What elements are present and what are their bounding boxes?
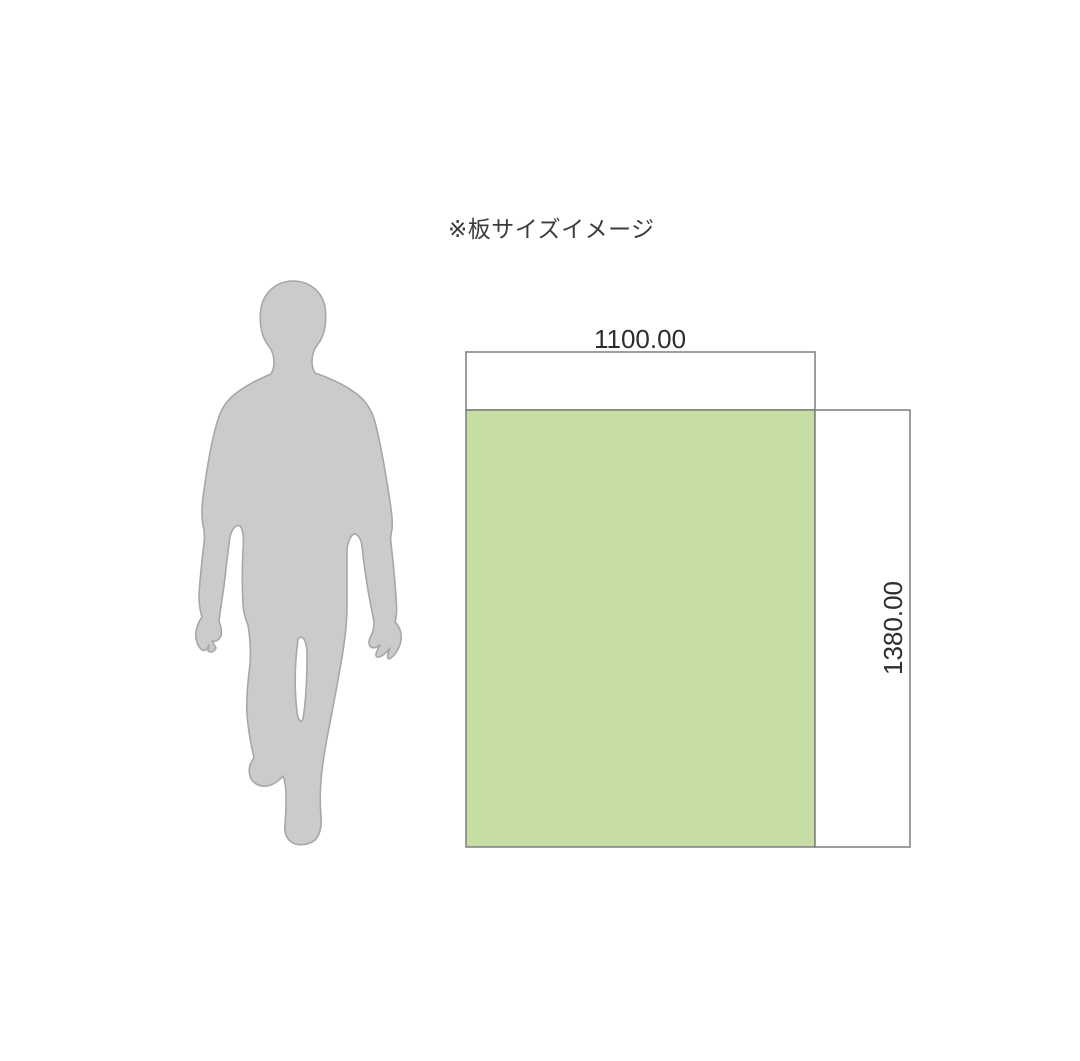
size-diagram-scene: 1100.00 1380.00 (0, 0, 1080, 1061)
board-rect (466, 410, 815, 847)
page: ※板サイズイメージ 1100.00 1380.00 (0, 0, 1080, 1061)
height-dimension-label: 1380.00 (878, 581, 908, 675)
person-walking-icon (196, 281, 402, 845)
board-size-diagram: 1100.00 1380.00 (466, 324, 910, 847)
human-silhouette (196, 281, 402, 845)
width-dimension-label: 1100.00 (594, 324, 686, 354)
width-dimension-box (466, 352, 815, 410)
